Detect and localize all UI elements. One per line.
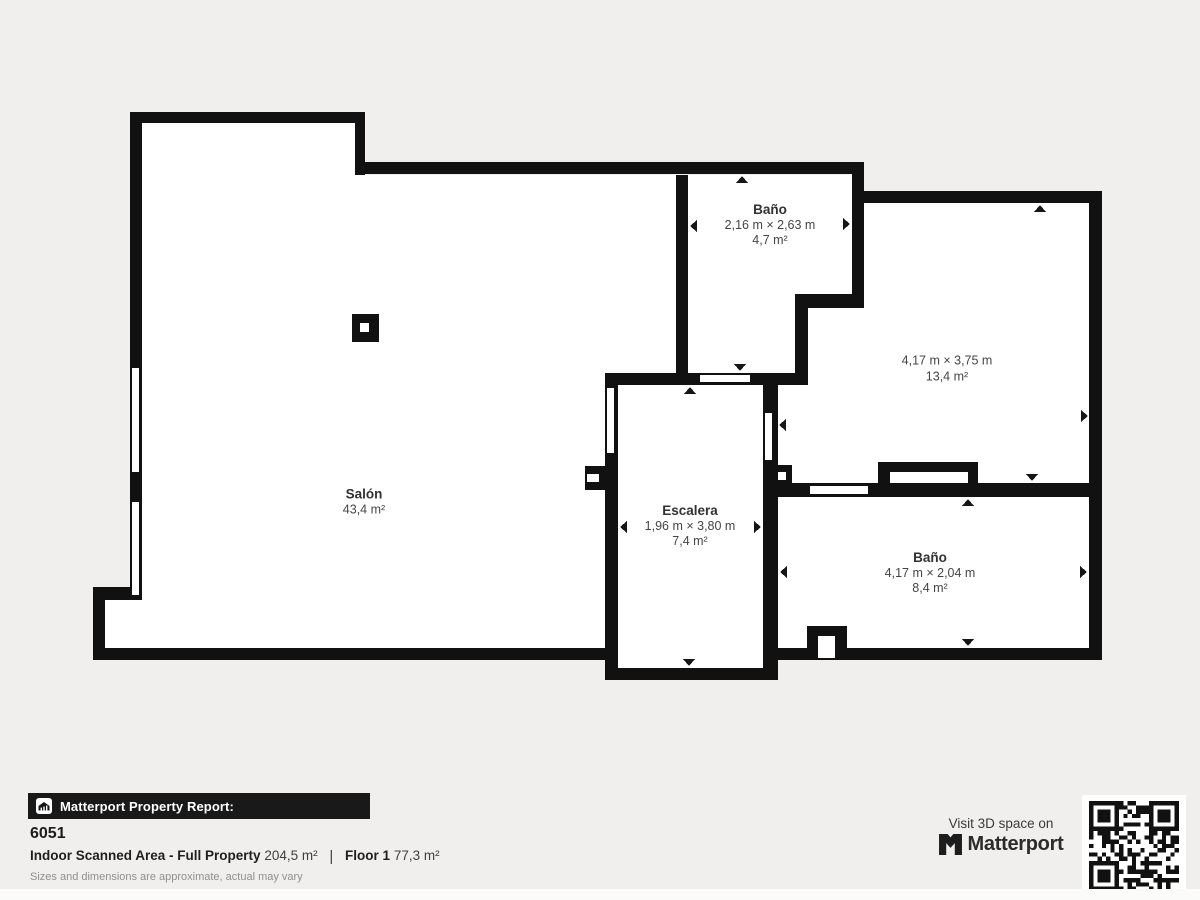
room-area: 13,4 m² bbox=[902, 369, 993, 385]
property-id: 6051 bbox=[30, 825, 66, 843]
floor-value: 77,3 m² bbox=[394, 848, 440, 863]
window bbox=[890, 472, 968, 483]
room-dimensions: 1,96 m × 3,80 m bbox=[645, 518, 736, 534]
room-dimensions: 2,16 m × 2,63 m bbox=[725, 217, 816, 233]
qr-code bbox=[1082, 795, 1186, 897]
room-label-right-room: 4,17 m × 3,75 m 13,4 m² bbox=[902, 354, 993, 385]
matterport-brand: Matterport bbox=[939, 833, 1064, 856]
room-floor-right-room bbox=[808, 308, 864, 483]
window bbox=[132, 368, 139, 472]
visit-3d-label: Visit 3D space on bbox=[949, 816, 1054, 831]
qr-code-pattern bbox=[1089, 801, 1179, 891]
window bbox=[765, 413, 772, 460]
indoor-area-label: Indoor Scanned Area - Full Property bbox=[30, 848, 261, 863]
room-floor-salon bbox=[105, 123, 676, 648]
matterport-logo-icon bbox=[939, 834, 962, 855]
floor-label: Floor 1 bbox=[345, 848, 390, 863]
scan-stats: Indoor Scanned Area - Full Property 204,… bbox=[30, 848, 440, 865]
stats-divider: | bbox=[329, 848, 333, 865]
room-area: 7,4 m² bbox=[645, 534, 736, 550]
door-opening bbox=[587, 474, 599, 482]
room-label-escalera: Escalera 1,96 m × 3,80 m 7,4 m² bbox=[645, 503, 736, 550]
room-floor-right-room bbox=[864, 203, 1089, 483]
window bbox=[700, 375, 750, 382]
window bbox=[132, 502, 139, 595]
room-name: Salón bbox=[343, 487, 385, 503]
house-icon bbox=[36, 798, 52, 814]
room-dimensions: 4,17 m × 2,04 m bbox=[885, 565, 976, 581]
room-label-salon: Salón 43,4 m² bbox=[343, 487, 385, 518]
bottom-strip bbox=[0, 889, 1200, 900]
floor-plan bbox=[0, 0, 1200, 900]
window bbox=[607, 388, 614, 453]
room-name: Baño bbox=[725, 202, 816, 218]
room-label-bano-top: Baño 2,16 m × 2,63 m 4,7 m² bbox=[725, 202, 816, 249]
door-opening bbox=[778, 472, 786, 480]
report-bar: Matterport Property Report: bbox=[28, 793, 370, 819]
room-name: Baño bbox=[885, 550, 976, 566]
matterport-wordmark: Matterport bbox=[968, 833, 1064, 856]
room-dimensions: 4,17 m × 3,75 m bbox=[902, 354, 993, 370]
matterport-floorplan-page: Salón 43,4 m² Baño 2,16 m × 2,63 m 4,7 m… bbox=[0, 0, 1200, 900]
window bbox=[810, 486, 868, 494]
room-name: Escalera bbox=[645, 503, 736, 519]
column-pillar-core bbox=[360, 323, 369, 332]
disclaimer-text: Sizes and dimensions are approximate, ac… bbox=[30, 871, 303, 883]
room-floor-bano-top bbox=[688, 294, 795, 373]
indoor-area-value: 204,5 m² bbox=[264, 848, 317, 863]
room-area: 43,4 m² bbox=[343, 502, 385, 518]
visit-3d-block: Visit 3D space on Matterport bbox=[933, 816, 1069, 856]
room-label-bano-bottom: Baño 4,17 m × 2,04 m 8,4 m² bbox=[885, 550, 976, 597]
room-area: 8,4 m² bbox=[885, 581, 976, 597]
room-area: 4,7 m² bbox=[725, 233, 816, 249]
door-opening bbox=[818, 636, 835, 658]
report-bar-label: Matterport Property Report: bbox=[60, 799, 234, 814]
